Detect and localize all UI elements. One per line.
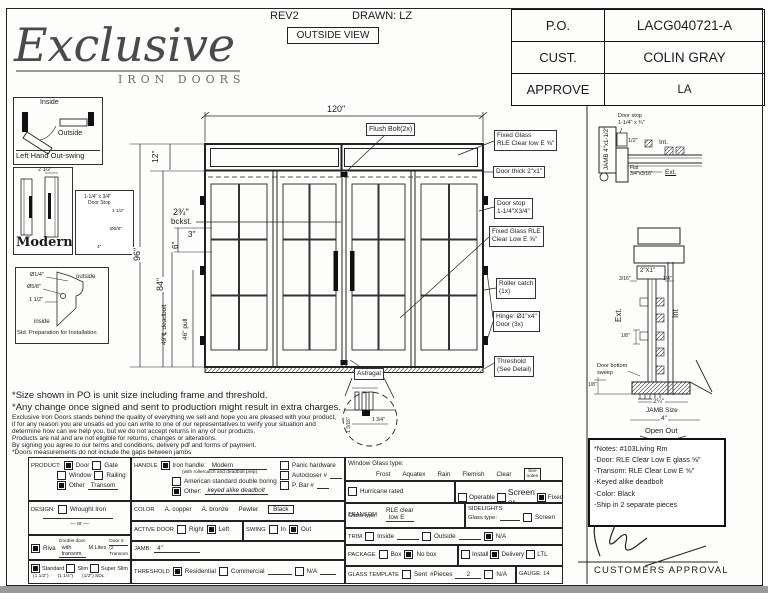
product-cell: PRODUCT: Door Gate Window Railing Other … — [28, 457, 131, 501]
gauge-cell: GAUGE: 14 — [516, 566, 563, 584]
handle-cell: HANDLE Iron handle: Modern (with rollerc… — [131, 457, 345, 501]
table-row: CUST. COLIN GRAY — [512, 42, 764, 74]
dim-six: 6" — [171, 242, 180, 249]
checkbox-no-box — [404, 550, 413, 559]
jamb-label: JAMB: — [134, 546, 151, 552]
disclaimer-size-note: *Size shown in PO is unit size including… — [12, 390, 268, 401]
note-line: -Transom: RLE Clear Low E ⅝" — [594, 465, 720, 476]
product-label: PRODUCT: — [31, 463, 61, 469]
jamb-interior-label: Int. — [659, 139, 668, 146]
hinge-callout: Hinge: Ø1"x4" Door (3x) — [493, 311, 540, 332]
section-exterior-label: Ext. — [614, 308, 623, 322]
checkbox-ltl — [526, 550, 535, 559]
disclaimer-small-line: Products are nal and are not eligible fo… — [12, 435, 217, 442]
threshold-dim-18: 1/8" — [588, 382, 597, 388]
operable-fixed-cell: Operable Screen or Fixed — [455, 481, 563, 503]
sidelights-label: SIDELIGHTS — [468, 506, 560, 512]
option-label: Standard — [42, 566, 64, 572]
customers-approval-label: CUSTOMERS APPROVAL — [594, 565, 729, 576]
option-label: LTL — [537, 551, 547, 558]
option-label: American standard double boring — [184, 478, 277, 485]
checkbox-out — [289, 525, 298, 534]
option-label: Gate — [104, 462, 118, 469]
swing-caption: Left Hand Out-swing — [16, 150, 100, 160]
glass-option: Aquatex — [402, 471, 425, 478]
trim-label: TRIM — [348, 534, 362, 540]
disclaimer-small-line: *Doors measurements do not include the g… — [12, 449, 191, 456]
checkbox-template-na — [484, 570, 493, 579]
window-glass-cell: Window Glass type: Frost Aquatex Rain Fl… — [345, 457, 563, 481]
scanned-order-sheet: Exclusive IRON DOORS REV2 DRAWN: LZ OUTS… — [0, 0, 768, 593]
color-option: Pewter — [239, 506, 259, 513]
transom-glass-cell: TRANSOM RLE clear low E Glass type: — [345, 503, 465, 528]
callout-line: sweep — [597, 370, 627, 377]
order-info-table: P.O. LACG040721-A CUST. COLIN GRAY APPRO… — [511, 9, 765, 106]
trim-outside-blank — [459, 533, 481, 540]
option-label: N/A — [307, 568, 318, 575]
option-label: Wrought Iron — [70, 506, 106, 513]
doorstop-dim1: 1 1/2" — [112, 209, 124, 214]
jamb-half-dim: 1/2" — [628, 138, 638, 144]
checkbox-sidelights-screen — [523, 513, 532, 522]
dim-total-height: 96" — [132, 247, 142, 262]
transom-glass-value: low E — [386, 514, 414, 522]
threshold-na-blank — [320, 568, 336, 575]
size-note: (1/2") SDL — [82, 574, 104, 580]
autocloser-blank — [330, 472, 342, 479]
checkbox-fixed — [537, 493, 546, 502]
option-label: Install — [472, 551, 488, 558]
size-note: (1 1/4") — [58, 574, 74, 580]
checkbox-install — [461, 550, 470, 559]
door-bottom-sweep-label: Door bottom sweep — [597, 363, 627, 376]
option-label: P. Bar # — [292, 482, 314, 489]
color-selected: Black — [268, 505, 293, 514]
callout-line: Threshold — [497, 358, 531, 366]
note-line: -Door: RLE Clear Low E glass ⅝" — [594, 454, 720, 465]
callout-line: Clear Low E ⅝" — [492, 236, 541, 244]
iron-handle-value: Modern — [209, 462, 267, 470]
color-label: COLOR — [134, 507, 155, 513]
option-label: Autocloser # — [292, 472, 327, 479]
dim-deadbolt-height: 49"℄ deadbolt — [160, 305, 168, 345]
prep-caption: Std. Preparation for Installation — [17, 330, 97, 336]
callout-line: Hinge: Ø1"x4" — [496, 313, 537, 321]
roller-catch-callout: Roller catch (1x) — [496, 278, 536, 299]
doorstop-name-label: Door Stop — [88, 200, 111, 206]
checkbox-operable — [458, 493, 467, 502]
option-label: Sent — [414, 571, 427, 578]
color-cell: COLOR A. copper A. bronze Pewter Black — [131, 501, 345, 521]
option-label: Hurricane rated — [360, 488, 403, 495]
checkbox-american-boring — [172, 477, 181, 486]
option-label: Other: — [184, 488, 202, 495]
option-label: Box — [391, 551, 402, 558]
other-handle-value: keyed alike deadbolt — [205, 487, 268, 495]
callout-line: Door bottom — [597, 363, 627, 370]
checkbox-box — [379, 550, 388, 559]
checkbox-trim-na — [484, 532, 493, 541]
option-label: Outside — [434, 533, 456, 540]
checkbox-right — [177, 525, 186, 534]
order-form: PRODUCT: Door Gate Window Railing Other … — [28, 457, 563, 584]
jamb-value: 4" — [154, 545, 200, 553]
color-option: A. copper — [165, 506, 192, 513]
trim-inside-blank — [397, 533, 419, 540]
option-label: Out — [301, 526, 311, 533]
swing-inside-label: Inside — [40, 99, 59, 106]
riva-note: Double door — [59, 539, 86, 545]
mlites-label: M.Lites — [89, 545, 107, 551]
checkbox-other-handle — [172, 487, 181, 496]
flush-bolt-callout: Flush Bolt(2x) — [366, 123, 415, 136]
approve-label: APPROVE — [512, 74, 605, 105]
option-label: Panic hardware — [292, 462, 336, 469]
callout-line: Door stop — [497, 200, 530, 208]
see-notes-badge: Seenotes — [524, 468, 542, 481]
section-dim-316: 3/16" — [619, 276, 631, 282]
checkbox-window — [57, 471, 66, 480]
customer-label: CUST. — [512, 42, 605, 73]
jamb-cell: JAMB: 4" — [131, 541, 345, 560]
pieces-label: #Pieces — [430, 571, 452, 578]
threshold-callout: Threshold (See Detail) — [494, 356, 534, 377]
threshold-dim-214: 2¼" — [652, 398, 665, 405]
design-or-label: — or — — [31, 521, 128, 527]
checkbox-standard — [31, 564, 40, 573]
prep-dia1: Ø1/4" — [30, 272, 44, 278]
handle-label: HANDLE — [134, 463, 158, 469]
design-label: DESIGN: — [31, 507, 55, 513]
scan-edge — [0, 586, 768, 593]
option-label: Residential — [185, 568, 216, 575]
sidelights-glass-type-label: Glass type: — [468, 515, 497, 521]
checkbox-railing — [94, 471, 103, 480]
disclaimer-small-line: Exclusive Iron Doors stands behind the q… — [12, 414, 336, 421]
checkbox-p-bar — [280, 481, 289, 490]
revision-label: REV2 — [270, 10, 299, 22]
threshold-label: THRESHOLD — [134, 569, 170, 575]
callout-line: Roller catch — [499, 280, 533, 288]
delivery-cell: Install Delivery LTL — [458, 545, 563, 566]
option-label: Screen or — [508, 487, 535, 503]
riva-value: with transom — [59, 545, 86, 558]
jamb-size-label: JAMB 4"x1-1/2" — [603, 127, 610, 170]
option-label: Delivery — [501, 551, 524, 558]
callout-line: Door (3x) — [496, 321, 537, 329]
glass-option: Frost — [376, 471, 390, 478]
design-cell: DESIGN: Wrought Iron — or — — [28, 501, 131, 535]
option-label: Slim — [77, 566, 88, 572]
prep-dia2: Ø5/8" — [27, 284, 41, 290]
color-option: A. bronze — [202, 506, 229, 513]
disclaimer-small-line: determine how can we help you, but we do… — [12, 428, 255, 435]
dim-transom-height: 12" — [150, 151, 160, 163]
approve-value: LA — [605, 74, 764, 105]
callout-line: (1x) — [499, 288, 533, 296]
jamb-flat-label: Flat 3/4"x3/16" — [630, 166, 653, 178]
checkbox-trim-outside — [422, 532, 431, 541]
checkbox-trim-inside — [365, 532, 374, 541]
pbar-blank — [317, 482, 329, 489]
checkbox-riva — [31, 544, 40, 553]
po-value: LACG040721-A — [605, 10, 764, 41]
jamb-size-caption: JAMB Size — [646, 407, 678, 414]
riva-label: Riva — [43, 545, 56, 552]
dim-three: 3" — [188, 230, 195, 239]
rail-size-label: 2"X1" — [640, 268, 655, 274]
jamb-doorstop-label: Door stop 1-1/4" x ¾" — [618, 113, 645, 126]
callout-line: 3/4"x3/16" — [630, 172, 653, 178]
checkbox-super-slim — [90, 564, 99, 573]
option-label: Fixed — [548, 494, 563, 501]
active-door-label: ACTIVE DOOR — [134, 527, 174, 533]
note-line: -Keyed alike deadbolt — [594, 476, 720, 487]
callout-line: Fixed Glass RLE — [492, 228, 541, 236]
handle-dim: 2 1/2" — [38, 167, 52, 173]
dim-backset-label: bckst. — [171, 217, 192, 226]
option-label: In — [281, 526, 286, 533]
disclaimer-small-line: if for any reason you are unsatis ed you… — [12, 421, 316, 428]
checkbox-threshold-na — [295, 567, 304, 576]
callout-line: RLE Clear low E ⅝" — [497, 140, 554, 148]
checkbox-hurricane — [348, 487, 357, 496]
frame-width-cell: Standard Slim Super Slim (1 1/2") (1 1/4… — [28, 560, 131, 584]
order-notes-box: *Notes: #103Living Rm -Door: RLE Clear L… — [588, 438, 726, 527]
checkbox-gate — [92, 461, 101, 470]
checkbox-sent — [402, 570, 411, 579]
drawn-by-label: DRAWN: LZ — [352, 10, 412, 22]
company-logo-subtitle: IRON DOORS — [118, 73, 245, 86]
active-door-cell: ACTIVE DOOR Right Left — [131, 521, 243, 541]
callout-line: 1-1/4"X3/4" — [497, 208, 530, 216]
callout-line: Door stop — [618, 113, 645, 120]
checkbox-iron-handle — [161, 461, 170, 470]
mlites-value: (2 Transom — [109, 545, 128, 557]
option-label: Door — [76, 462, 90, 469]
option-label: No box — [416, 551, 436, 558]
doorstop-dim2: Ø5/8" — [110, 227, 122, 232]
door-thickness-callout: Door thick 2"x1" — [493, 166, 545, 178]
glass-option: Clear — [496, 471, 511, 478]
trim-cell: TRIM Inside Outside N/A — [345, 528, 563, 545]
checkbox-other-product — [57, 481, 66, 490]
note-line: -Ship in 2 separate pieces — [594, 499, 720, 510]
option-label: Left — [219, 526, 230, 533]
fixed-glass-top-callout: Fixed Glass RLE Clear low E ⅝" — [494, 130, 557, 151]
other-product-value: Transom — [88, 482, 119, 490]
option-label: Iron handle: — [173, 462, 206, 469]
swing-cell: SWING In Out — [243, 521, 345, 541]
checkbox-in — [269, 525, 278, 534]
door-stop-callout: Door stop 1-1/4"X3/4" — [494, 198, 533, 219]
handle-style-caption: Modern — [16, 235, 73, 250]
checkbox-delivery — [490, 550, 499, 559]
riva-cell: Riva Double door with transom M.Lites Do… — [28, 535, 131, 560]
pieces-value: 2 — [455, 571, 481, 579]
swing-label: SWING — [246, 527, 266, 533]
sidelights-cell: SIDELIGHTS Glass type: Screen — [465, 503, 563, 528]
customer-value: COLIN GRAY — [605, 42, 764, 73]
option-label: N/A — [496, 571, 507, 578]
option-label: Other — [69, 482, 85, 489]
threshold-cell: THRESHOLD Residential Commercial N/A — [131, 560, 345, 584]
prep-dim: 1 1/2" — [29, 297, 43, 303]
option-label: Railing — [106, 472, 125, 479]
checkbox-left — [207, 525, 216, 534]
jamb-size-value: 4" — [660, 415, 668, 422]
dim-width: 120" — [326, 104, 346, 114]
transom-glass-value: RLE clear — [386, 507, 414, 514]
company-logo: Exclusive — [14, 18, 235, 72]
prep-inside-label: inside — [34, 319, 50, 325]
dim-door-height: 84" — [155, 277, 165, 292]
option-label: Commercial — [231, 568, 265, 575]
section-interior-label: Int — [671, 309, 680, 318]
prep-outside-label: outside — [76, 274, 95, 280]
option-label: Right — [189, 526, 204, 533]
commercial-blank — [268, 568, 292, 575]
note-line: *Notes: #103Living Rm — [594, 443, 720, 454]
package-cell: PACKAGE Box No box — [345, 545, 458, 566]
table-row: P.O. LACG040721-A — [512, 10, 764, 42]
dim-pull-height: 46" pull — [182, 319, 189, 340]
glass-option: Flemish — [462, 471, 484, 478]
table-row: APPROVE LA — [512, 74, 764, 105]
swing-outside-label: Outside — [58, 130, 82, 137]
note-line: -Color: Black — [594, 488, 720, 499]
section-dim-14: 1/4" — [663, 276, 672, 282]
glass-template-label: GLASS TEMPLATE — [348, 572, 399, 578]
section-dim-18: 1/8" — [621, 333, 630, 339]
glass-template-cell: GLASS TEMPLATE Sent #Pieces 2 N/A — [345, 566, 516, 584]
callout-line: 1-1/4" x ¾" — [618, 120, 645, 127]
checkbox-door — [64, 461, 73, 470]
astragal-dim1: 1 3/16" — [346, 417, 352, 433]
option-label: Inside — [377, 533, 394, 540]
option-label: Super Slim — [101, 566, 128, 572]
callout-line: Fixed Glass — [497, 132, 554, 140]
checkbox-panic-hardware — [280, 461, 289, 470]
option-label: Window — [69, 472, 91, 479]
checkbox-commercial — [219, 567, 228, 576]
outside-view-badge: OUTSIDE VIEW — [287, 27, 379, 44]
disclaimer-change-note: *Any change once signed and sent to prod… — [12, 402, 341, 413]
jamb-exterior-label: Ext. — [665, 169, 676, 176]
option-label: Operable — [469, 494, 495, 501]
glass-option: Rain — [437, 471, 450, 478]
callout-line: (See Detail) — [497, 366, 531, 374]
doorstop-dim3: 4" — [97, 245, 101, 250]
size-note: (1 1/2") — [33, 574, 49, 580]
package-label: PACKAGE — [348, 552, 376, 558]
checkbox-slim — [66, 564, 75, 573]
checkbox-screen — [497, 493, 506, 502]
gauge-value: GAUGE: 14 — [519, 571, 560, 577]
open-out-label: Open Out — [645, 426, 678, 435]
fixed-glass-mid-callout: Fixed Glass RLE Clear Low E ⅝" — [489, 226, 544, 247]
checkbox-residential — [173, 567, 182, 576]
astragal-callout: Astragal — [354, 368, 384, 380]
checkbox-wrought-iron — [58, 505, 67, 514]
po-label: P.O. — [512, 10, 605, 41]
sidelights-blank — [500, 514, 520, 521]
window-glass-label: Window Glass type: — [348, 460, 560, 467]
disclaimer-small-line: By signing you agree to our terms and co… — [12, 442, 256, 449]
astragal-dim2: 1 3/4" — [372, 417, 385, 423]
option-label: N/A — [496, 533, 507, 540]
dim-backset: 2¾" — [173, 207, 189, 217]
option-label: Screen — [535, 514, 555, 521]
hurricane-cell: Hurricane rated — [345, 481, 455, 503]
checkbox-autocloser — [280, 471, 289, 480]
